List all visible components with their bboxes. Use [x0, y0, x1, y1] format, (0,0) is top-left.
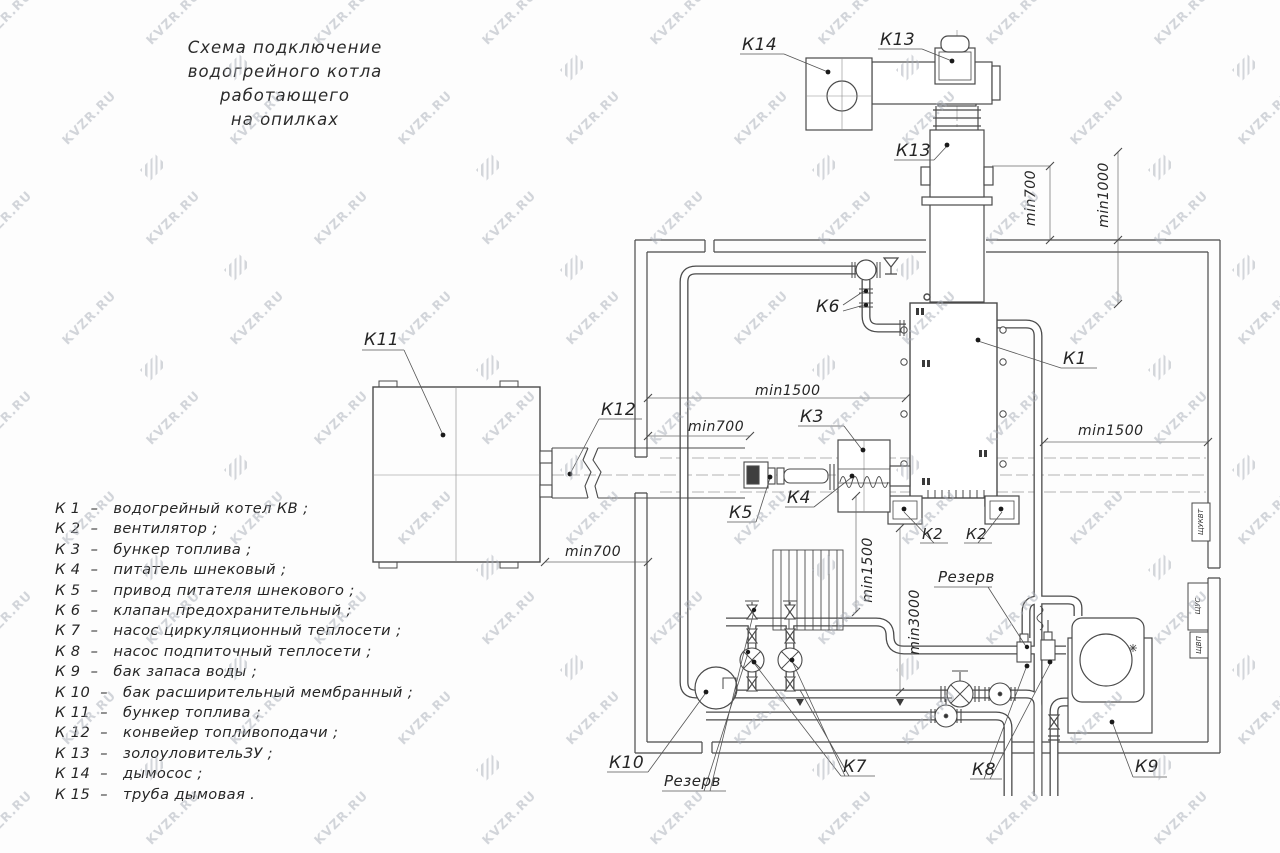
leader-lines: [362, 49, 1167, 791]
legend-item: К 3 – бункер топлива ;: [55, 540, 413, 560]
pipes: [684, 270, 1078, 796]
legend-item: К 14 – дымосос ;: [55, 764, 413, 784]
legend: К 1 – водогрейный котел КВ ; К 2 – венти…: [55, 499, 413, 805]
boiler-k1: [901, 294, 1006, 506]
title-line-1: Схема подключение: [130, 36, 440, 60]
legend-item: К 6 – клапан предохранительный ;: [55, 601, 413, 621]
legend-item: К 15 – труба дымовая .: [55, 785, 413, 805]
title-line-2: водогрейного котла работающего: [130, 60, 440, 108]
legend-item: К 8 – насос подпиточный теплосети ;: [55, 642, 413, 662]
expansion-tank-k10: [695, 667, 737, 709]
schematic-page: К14 К13 К13 К6 К1 К11 К12 К3 К4 К5 К2 К2…: [0, 0, 1280, 853]
legend-item: К 1 – водогрейный котел КВ ;: [55, 499, 413, 519]
legend-item: К 5 – привод питателя шнекового ;: [55, 581, 413, 601]
ash-catcher-k13: [930, 130, 984, 197]
legend-list: К 1 – водогрейный котел КВ ; К 2 – венти…: [55, 499, 413, 805]
flue-top-box-k13: [935, 48, 975, 84]
dimension-lines: [541, 148, 1212, 696]
legend-item: К 2 – вентилятор ;: [55, 519, 413, 539]
legend-item: К 10 – бак расширительный мембранный ;: [55, 683, 413, 703]
legend-item: К 11 – бункер топлива ;: [55, 703, 413, 723]
title-line-3: на опилках: [130, 108, 440, 132]
screw-feeder-drive-k5: [744, 462, 834, 490]
water-tank-k9: [1048, 618, 1152, 740]
legend-item: К 7 – насос циркуляционный теплосети ;: [55, 621, 413, 641]
legend-item: К 12 – конвейер топливоподачи ;: [55, 723, 413, 743]
chimney-assembly: [806, 36, 1000, 302]
wall-panels: [1188, 503, 1210, 658]
drawing-title: Схема подключение водогрейного котла раб…: [130, 36, 440, 132]
legend-item: К 4 – питатель шнековый ;: [55, 560, 413, 580]
legend-item: К 9 – бак запаса воды ;: [55, 662, 413, 682]
legend-item: К 13 – золоуловительЗУ ;: [55, 744, 413, 764]
